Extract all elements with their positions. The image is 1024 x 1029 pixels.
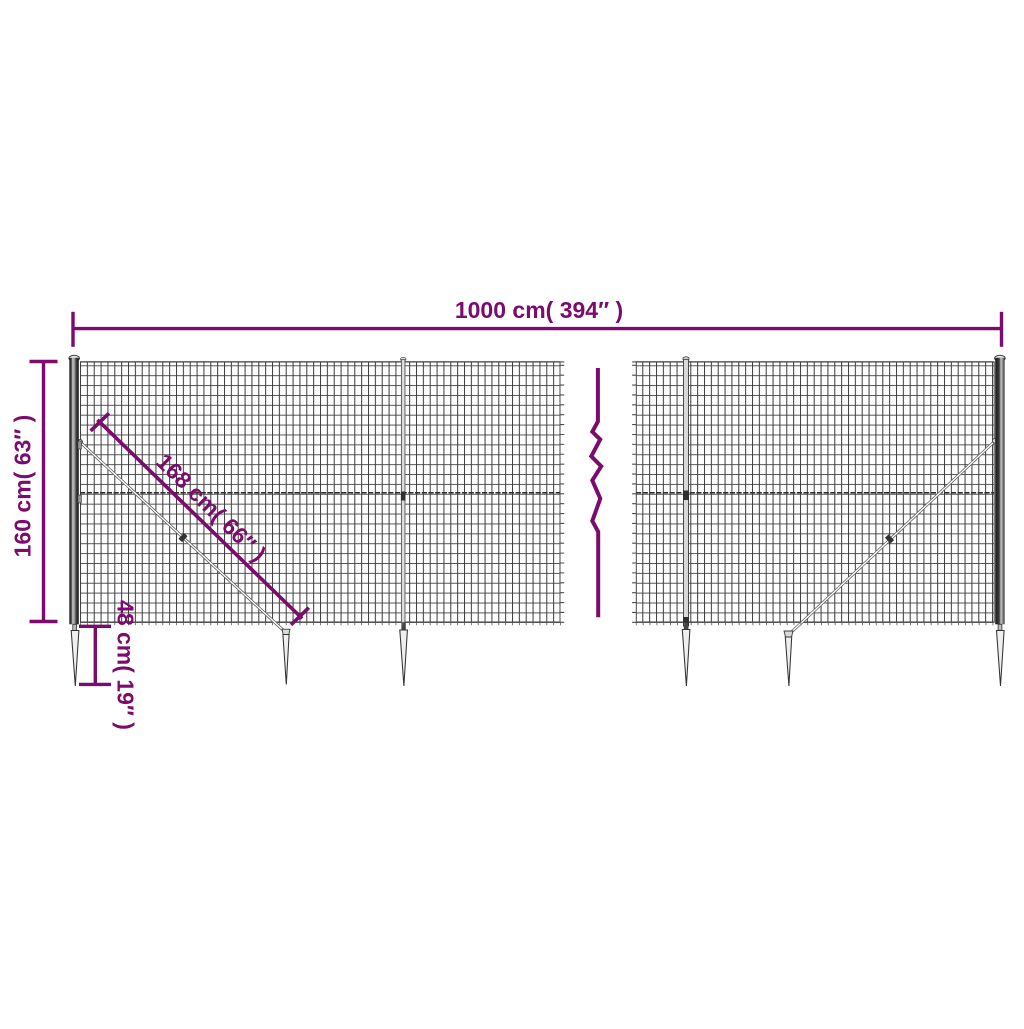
svg-text:1000 cm( 394″ ): 1000 cm( 394″ ) bbox=[455, 297, 623, 323]
svg-text:48 cm( 19″ ): 48 cm( 19″ ) bbox=[113, 600, 139, 730]
svg-text:160 cm( 63″ ): 160 cm( 63″ ) bbox=[10, 415, 36, 558]
